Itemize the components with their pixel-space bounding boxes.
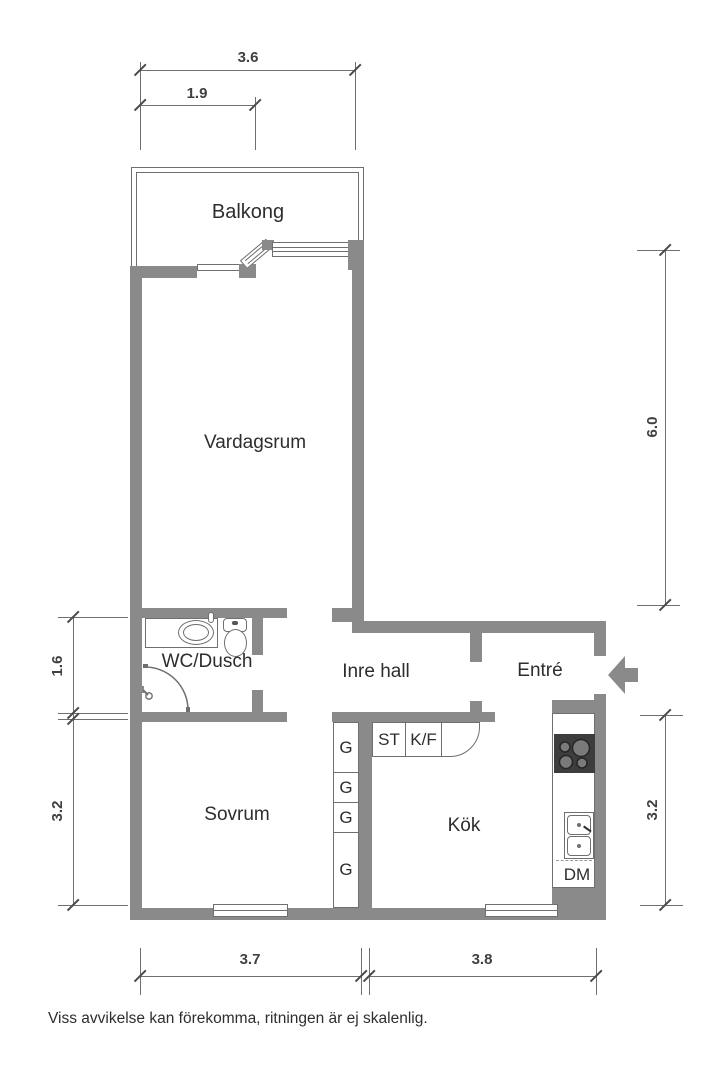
cabinet-kf: K/F — [405, 722, 442, 757]
room-label-living: Vardagsrum — [195, 431, 315, 455]
wardrobe-cell: G — [333, 772, 359, 803]
wardrobe-cell: G — [333, 802, 359, 833]
shower-icon — [0, 0, 720, 1080]
stove-icon — [554, 734, 595, 773]
wardrobe-cell: G — [333, 832, 359, 908]
wardrobe-cell: G — [333, 722, 359, 773]
cabinet-st: ST — [372, 722, 406, 757]
sink-drain — [577, 844, 581, 848]
room-label-wc: WC/Dusch — [157, 650, 257, 674]
dishwasher-label: DM — [558, 865, 596, 884]
room-label-hall: Inre hall — [326, 660, 426, 684]
room-label-kitchen: Kök — [424, 814, 504, 838]
floor-plan: 3.6 1.9 1.6 3.2 6.0 3.2 3.7 3.8 Balkong — [0, 0, 720, 1080]
dishwasher-dashed-line — [556, 860, 592, 861]
sink-drain — [577, 823, 581, 827]
room-label-bedroom: Sovrum — [187, 803, 287, 827]
room-label-entrance: Entré — [500, 659, 580, 683]
footer-note: Viss avvikelse kan förekomma, ritningen … — [48, 1010, 428, 1028]
